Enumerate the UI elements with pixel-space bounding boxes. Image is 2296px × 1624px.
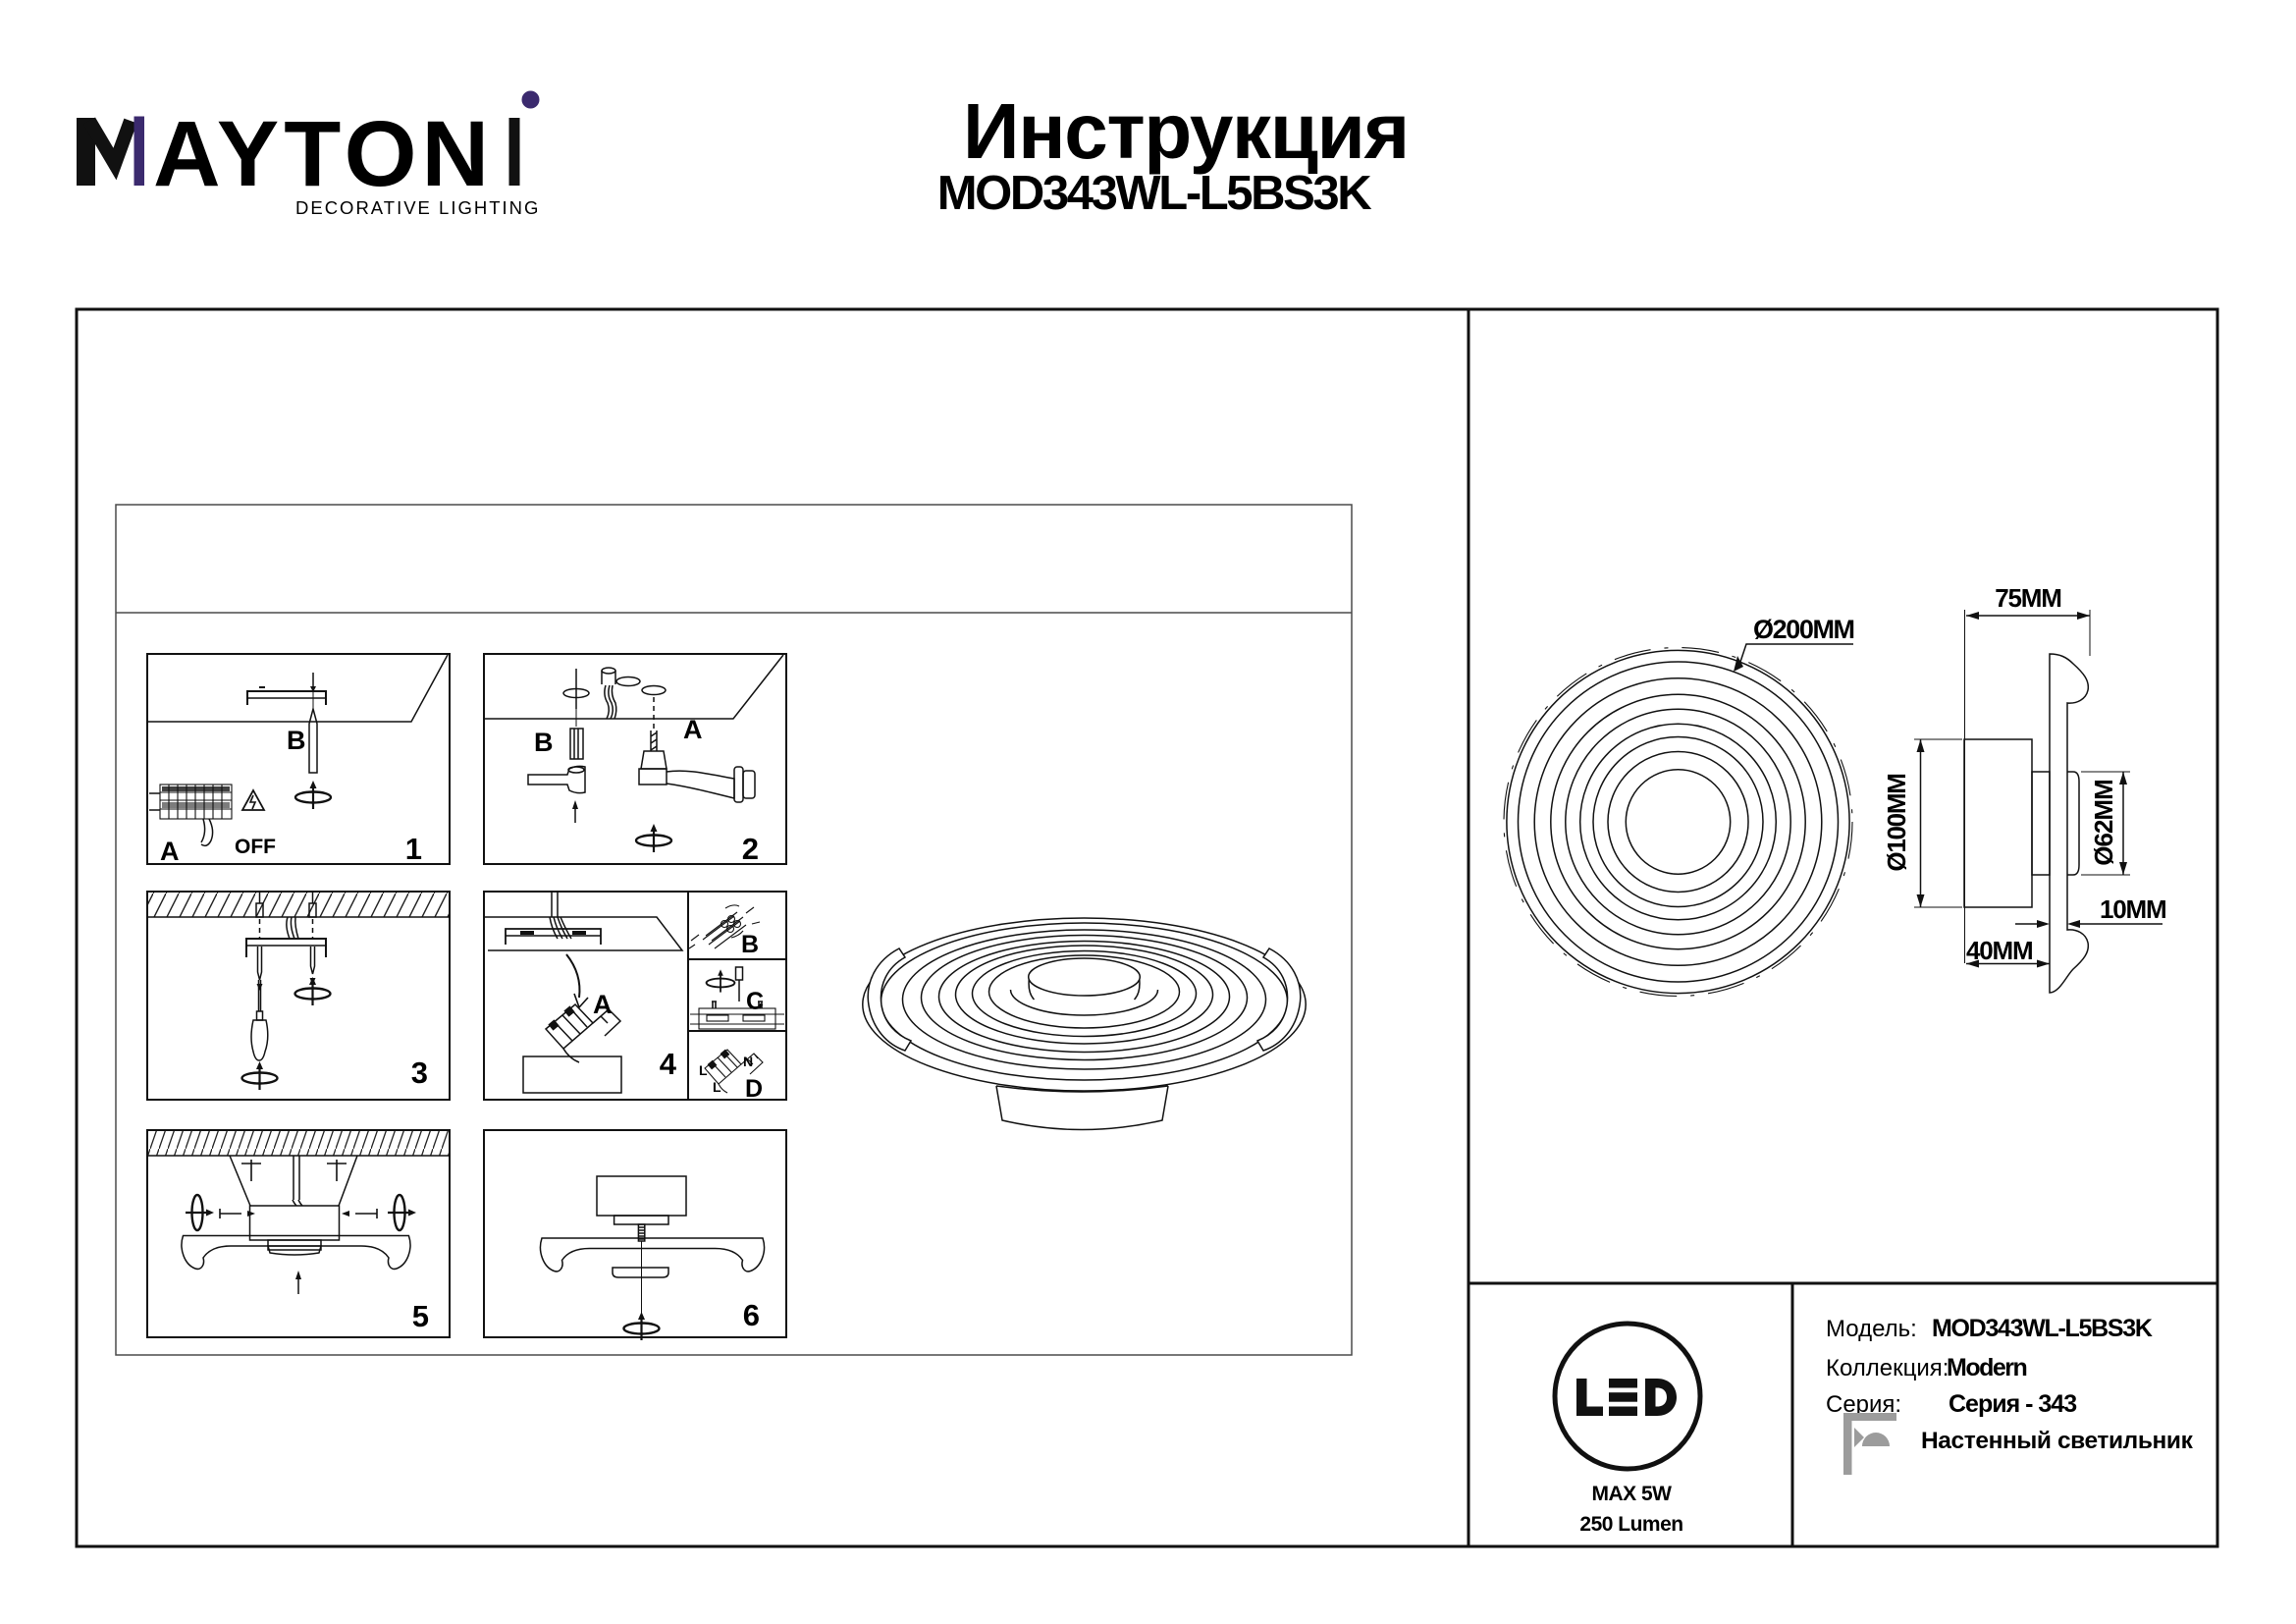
svg-text:A: A <box>593 990 613 1019</box>
svg-text:6: 6 <box>743 1298 760 1332</box>
svg-text:Ø62MM: Ø62MM <box>2089 780 2118 865</box>
svg-text:3: 3 <box>411 1056 428 1090</box>
svg-text:L: L <box>713 1079 721 1095</box>
svg-text:MAX 5W: MAX 5W <box>1592 1483 1673 1505</box>
svg-text:OFF: OFF <box>235 836 276 858</box>
svg-text:250 Lumen: 250 Lumen <box>1579 1513 1682 1536</box>
svg-text:Инструкция: Инструкция <box>963 87 1409 175</box>
svg-text:2: 2 <box>742 832 759 866</box>
svg-text:A: A <box>683 715 703 744</box>
svg-text:Серия - 343: Серия - 343 <box>1949 1390 2076 1418</box>
svg-text:AYTON: AYTON <box>153 102 494 206</box>
svg-text:MOD343WL-L5BS3K: MOD343WL-L5BS3K <box>1932 1315 2153 1342</box>
svg-text:4: 4 <box>660 1047 677 1081</box>
svg-text:D: D <box>745 1075 763 1103</box>
svg-text:1: 1 <box>405 832 422 866</box>
svg-text:Настенный светильник: Настенный светильник <box>1921 1428 2194 1454</box>
svg-text:10MM: 10MM <box>2100 894 2165 924</box>
svg-text:DECORATIVE LIGHTING: DECORATIVE LIGHTING <box>295 197 540 218</box>
svg-text:Коллекция:: Коллекция: <box>1826 1355 1949 1381</box>
svg-text:N: N <box>743 1054 753 1069</box>
svg-text:MOD343WL-L5BS3K: MOD343WL-L5BS3K <box>937 167 1371 220</box>
svg-text:B: B <box>534 728 554 757</box>
svg-text:75MM: 75MM <box>1995 583 2060 613</box>
svg-text:B: B <box>287 726 306 755</box>
svg-text:L: L <box>699 1062 708 1078</box>
svg-text:5: 5 <box>412 1299 429 1333</box>
svg-text:Modern: Modern <box>1947 1354 2027 1381</box>
svg-text:Ø100MM: Ø100MM <box>1882 774 1911 871</box>
svg-text:Модель:: Модель: <box>1826 1316 1917 1342</box>
svg-text:A: A <box>160 837 180 866</box>
svg-text:B: B <box>741 931 759 958</box>
svg-text:Ø200MM: Ø200MM <box>1753 615 1854 644</box>
